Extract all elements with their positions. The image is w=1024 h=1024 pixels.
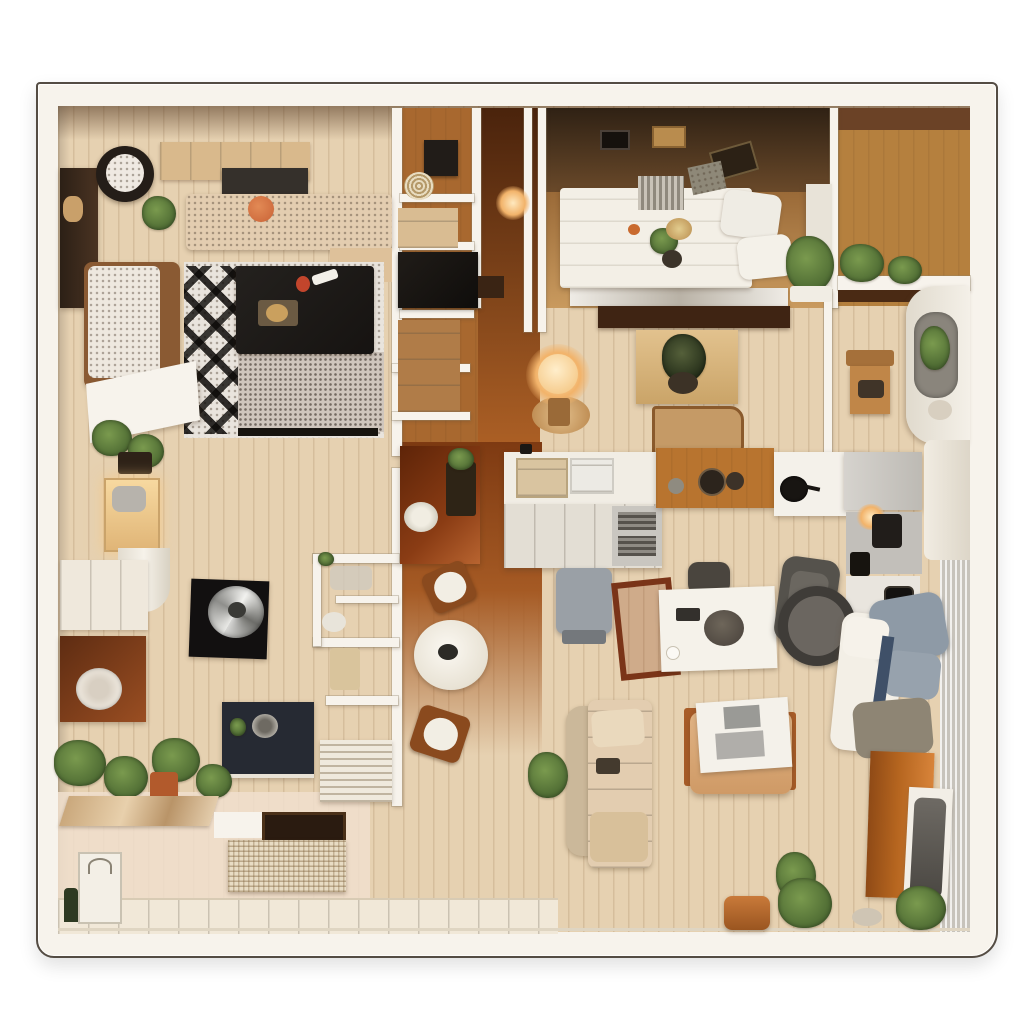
- bed-orange-flower: [628, 224, 640, 235]
- white-side-panel: [214, 812, 262, 838]
- table-black-item: [676, 608, 700, 621]
- green-bottle: [64, 888, 78, 922]
- black-console: [222, 168, 308, 196]
- jar-shelf: [924, 440, 970, 560]
- border-pebbles: [852, 908, 882, 926]
- nook-wall-3: [313, 638, 399, 647]
- closet-beige-shelves: [398, 208, 458, 248]
- red-candle: [296, 276, 310, 292]
- closet-black-box: [424, 140, 458, 176]
- table-cup: [666, 646, 680, 660]
- island-tray-2: [570, 458, 614, 494]
- prep-gadget-2: [726, 472, 744, 490]
- table-disc: [704, 610, 744, 646]
- ledge-plant-2: [888, 256, 922, 284]
- floor-plant-2: [104, 756, 148, 798]
- black-pan: [780, 476, 808, 502]
- bed-mirror-bench: [570, 288, 788, 306]
- mirror-row: [59, 796, 219, 826]
- nook-wall-4: [326, 696, 398, 705]
- basin-plant: [920, 326, 950, 370]
- bedroom-fern: [786, 236, 834, 292]
- woven-bench: [228, 840, 346, 892]
- floor-plan-canvas: [0, 0, 1024, 1024]
- prep-gadget-3: [668, 478, 684, 494]
- floor-plant-1: [54, 740, 106, 786]
- partition-wall-d: [524, 108, 532, 332]
- nook-beige-pot: [330, 648, 360, 690]
- border-plant-1: [778, 878, 832, 928]
- ledge-plant-1: [840, 244, 884, 282]
- fern-planter: [790, 286, 832, 302]
- bed-straw-star: [666, 218, 692, 240]
- door-mat: [478, 276, 504, 298]
- prep-gadget-1: [698, 468, 726, 496]
- sideboard-plant: [448, 448, 474, 470]
- partition-wall-e: [538, 108, 546, 332]
- white-bowl: [76, 668, 122, 710]
- lamp-stand: [548, 398, 570, 426]
- closet-shelf-5: [392, 412, 470, 420]
- sofa-throw: [590, 812, 648, 862]
- gray-garment: [909, 797, 946, 899]
- fridge-box-1: [844, 452, 922, 510]
- vanity-plant-1: [92, 420, 132, 456]
- rattan-disc: [404, 172, 434, 200]
- coffee-machine: [872, 514, 902, 548]
- sideboard-planter: [446, 462, 476, 516]
- oven-grate-2: [618, 536, 656, 556]
- closet-screen: [398, 252, 478, 308]
- bowl-core: [228, 602, 246, 618]
- sofa-pillow-top: [591, 708, 645, 748]
- rug-lower-dark: [238, 352, 384, 432]
- bottom-floor-line: [58, 928, 970, 931]
- gold-frame: [652, 126, 686, 148]
- tray-food: [266, 304, 288, 322]
- nook-wall-2: [336, 596, 398, 603]
- vanity-planter: [118, 452, 152, 474]
- bed-pillow-1: [719, 188, 783, 242]
- closet-shelf-3: [400, 310, 474, 318]
- louver-panel: [320, 740, 392, 802]
- desk-plate: [252, 714, 278, 738]
- island-bench: [556, 568, 612, 634]
- olive-blanket: [852, 697, 935, 760]
- nook-flowers: [322, 612, 346, 632]
- wood-stool: [724, 896, 770, 930]
- bench-base: [562, 630, 606, 644]
- desk-succulent: [230, 718, 246, 736]
- bathroom-wall: [824, 290, 832, 462]
- bed-pinecone: [662, 250, 682, 268]
- wood-chair-back: [846, 350, 894, 366]
- island-knob: [520, 444, 532, 454]
- rug-border-band: [238, 428, 378, 436]
- nook-sprig: [318, 552, 334, 566]
- orange-cushion: [248, 196, 274, 222]
- border-plant-2: [896, 886, 946, 930]
- daybed-mattress: [88, 266, 160, 378]
- bag-handle: [88, 858, 112, 874]
- oven-grate-1: [618, 512, 656, 530]
- basin-pebble: [928, 400, 952, 420]
- centerpiece-bowl: [668, 372, 698, 394]
- papasan-cushion: [106, 154, 144, 192]
- table-stone: [438, 644, 458, 660]
- vanity-cushion: [112, 486, 146, 512]
- closet-wood-cubbies: [398, 320, 460, 412]
- living-plant: [142, 196, 176, 230]
- metal-vent: [638, 176, 684, 210]
- wall-sconce-glow: [496, 186, 530, 220]
- sofa-plant: [528, 752, 568, 798]
- floor-plant-4: [196, 764, 232, 798]
- sofa-gadget: [596, 758, 620, 774]
- kitchen-dark-shelf: [598, 306, 790, 328]
- sideboard-flowers: [404, 502, 438, 532]
- nook-wall-v: [313, 554, 321, 646]
- chair-cloth: [858, 380, 884, 398]
- black-frame: [600, 130, 630, 150]
- beige-sofa: [186, 194, 392, 250]
- island-tray-1: [516, 458, 568, 498]
- nook-glassware: [330, 566, 372, 590]
- tray-inset-2: [715, 730, 765, 759]
- cabinet-lamp: [63, 196, 83, 222]
- tray-inset-1: [723, 705, 760, 729]
- floor-lamp-sphere: [538, 354, 578, 394]
- dark-jar: [850, 552, 870, 576]
- white-cabinet-left: [60, 560, 148, 630]
- right-column-band: [838, 108, 970, 132]
